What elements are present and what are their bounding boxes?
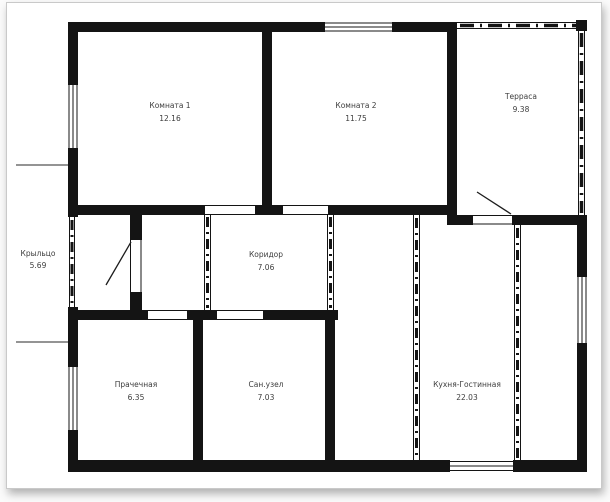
terrace-railing xyxy=(457,23,585,216)
room-name: Комната 2 xyxy=(335,101,376,110)
door-leaf-vestibule xyxy=(106,242,131,285)
room-label-kryltso: Крыльцо 5.69 xyxy=(21,249,56,270)
room-area: 7.06 xyxy=(258,263,275,272)
door-opening-vestibule xyxy=(131,240,142,292)
partition-kitchen-right xyxy=(515,225,521,460)
window-bottom-kitchen xyxy=(450,462,513,471)
room-labels: Комната 1 12.16 Комната 2 11.75 Терраса … xyxy=(21,92,537,402)
room-label-komnata-1: Комната 1 12.16 xyxy=(149,101,190,123)
partition-corridor-left xyxy=(205,215,211,310)
room-label-prachechnaya: Прачечная 6.35 xyxy=(115,380,157,402)
partition-porch-wall xyxy=(70,217,75,307)
room-name: Коридор xyxy=(249,250,283,259)
room-name: Кухня-Гостинная xyxy=(433,380,501,389)
room-label-kuhnya-gostinnaya: Кухня-Гостинная 22.03 xyxy=(433,380,501,402)
room-name: Комната 1 xyxy=(149,101,190,110)
room-area: 22.03 xyxy=(456,393,478,402)
partition-walls xyxy=(70,215,521,460)
room-label-sanuzel: Сан.узел 7.03 xyxy=(249,380,284,402)
door-opening-komnata1 xyxy=(205,206,255,215)
terrace-railing-top xyxy=(457,23,578,29)
window-left-lower xyxy=(69,367,77,430)
room-area: 6.35 xyxy=(128,393,145,402)
room-area: 11.75 xyxy=(345,114,367,123)
room-area: 5.69 xyxy=(30,261,47,270)
room-area: 12.16 xyxy=(159,114,181,123)
room-name: Сан.узел xyxy=(249,380,284,389)
room-area: 9.38 xyxy=(513,105,530,114)
room-label-koridor: Коридор 7.06 xyxy=(249,250,283,272)
room-name: Прачечная xyxy=(115,380,157,389)
room-label-terrasa: Терраса 9.38 xyxy=(504,92,537,114)
room-area: 7.03 xyxy=(258,393,275,402)
door-opening-terrace xyxy=(473,216,512,225)
window-left-upper xyxy=(69,85,77,148)
window-top xyxy=(325,23,392,31)
partition-corridor-right xyxy=(328,215,334,310)
door-opening-komnata2 xyxy=(283,206,328,215)
door-opening-wc xyxy=(217,311,263,320)
room-label-komnata-2: Комната 2 11.75 xyxy=(335,101,376,123)
partition-kitchen-left xyxy=(414,215,420,460)
terrace-railing-right xyxy=(579,29,585,215)
window-right-kitchen xyxy=(578,277,586,343)
room-name: Терраса xyxy=(504,92,537,101)
door-leaf-terrace xyxy=(477,192,511,214)
room-name: Крыльцо xyxy=(21,249,56,258)
floor-plan-svg: Комната 1 12.16 Комната 2 11.75 Терраса … xyxy=(0,0,610,502)
door-opening-laundry xyxy=(148,311,187,320)
floor-plan-image: Комната 1 12.16 Комната 2 11.75 Терраса … xyxy=(0,0,610,502)
